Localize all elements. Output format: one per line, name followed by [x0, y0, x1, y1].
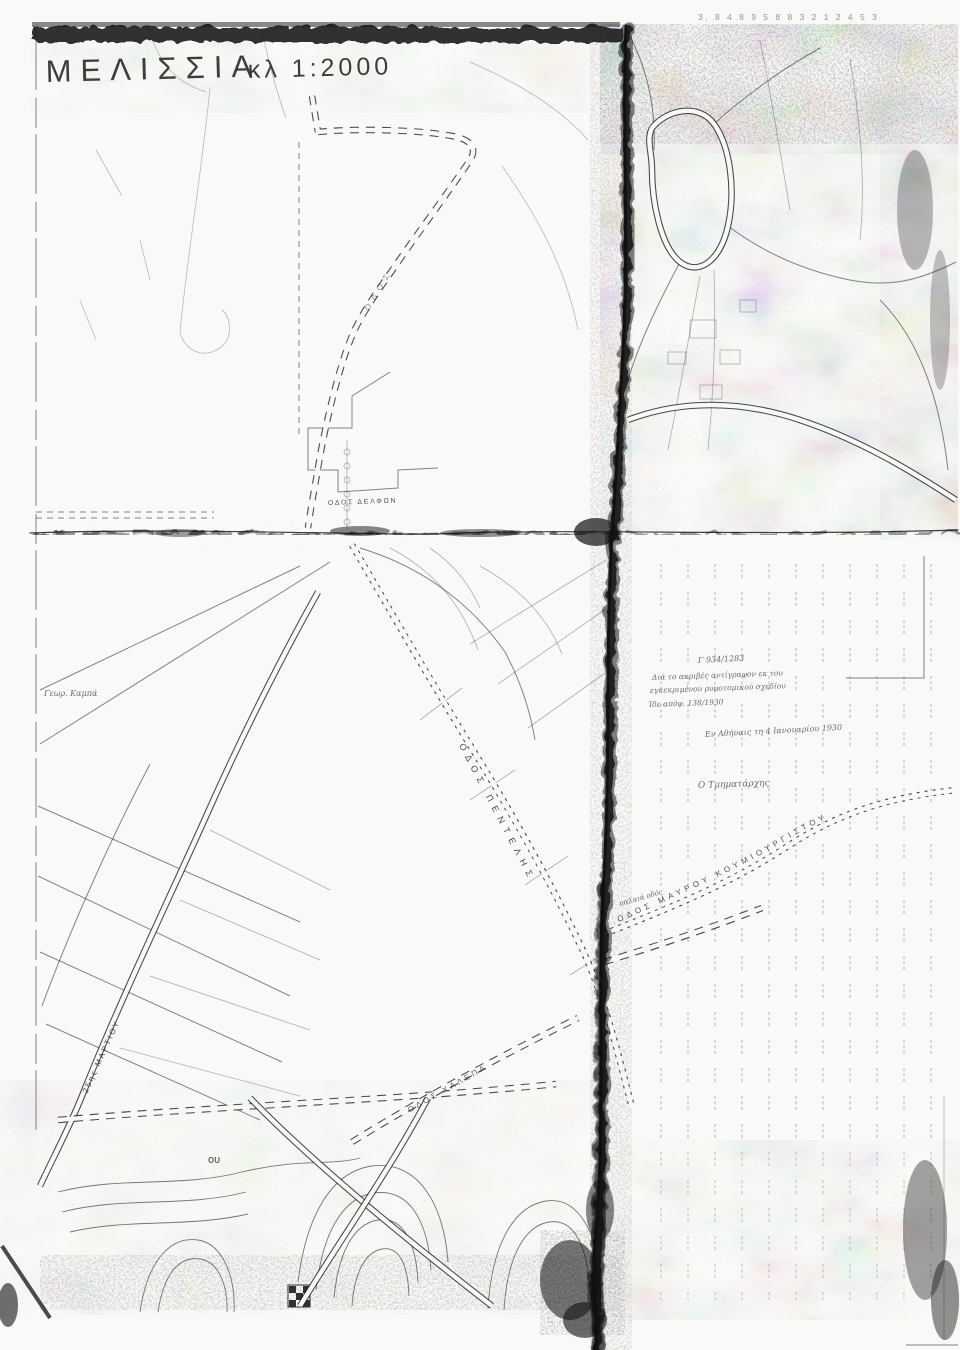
scanned-map-sheet: ΟΔΟΣ ΠΕΝΤΕΛΗΣ ΟΔΟΣ ΜΑΥΡΟΥ ΚΟΥΜΙΟΥΡΓΙΣΤΟΥ… — [0, 0, 960, 1350]
map-canvas: ΟΔΟΣ ΠΕΝΤΕΛΗΣ ΟΔΟΣ ΜΑΥΡΟΥ ΚΟΥΜΙΟΥΡΓΙΣΤΟΥ… — [0, 0, 960, 1350]
page-grain-2 — [3, 2, 960, 1320]
